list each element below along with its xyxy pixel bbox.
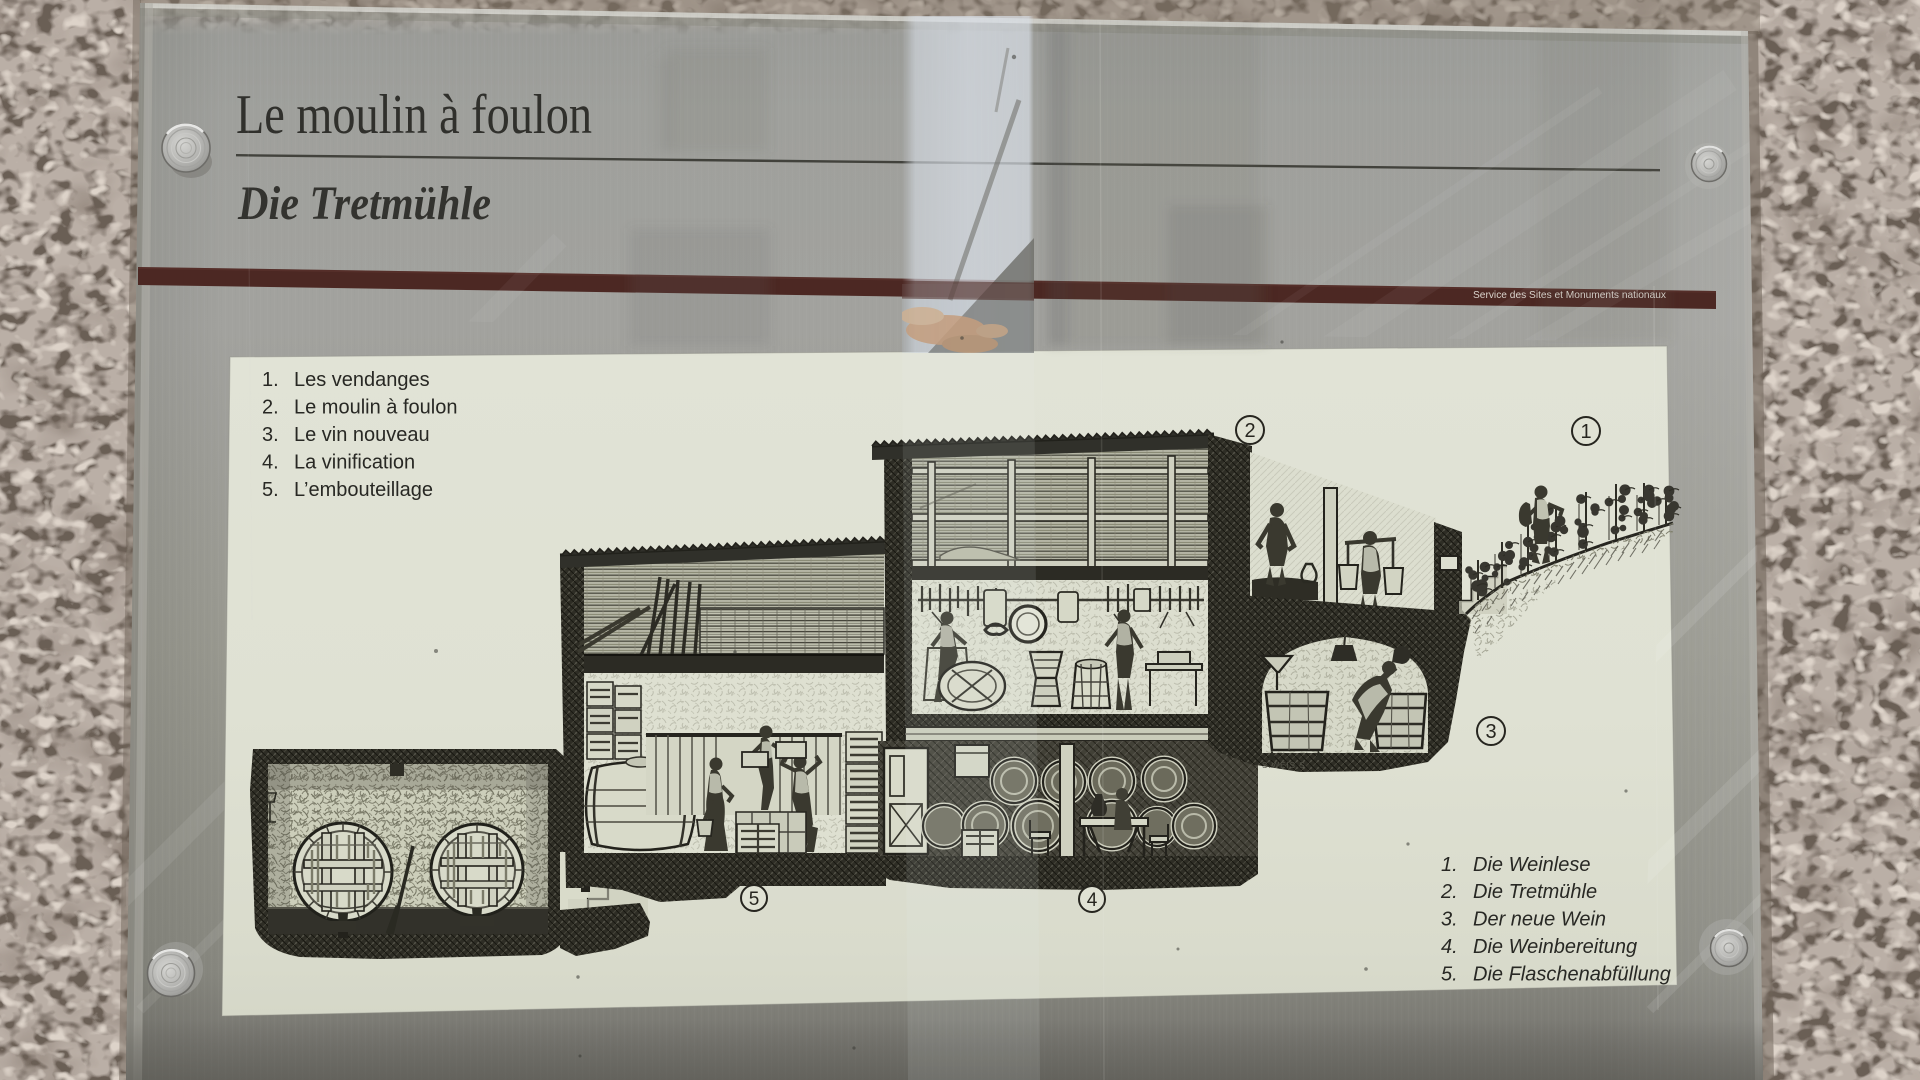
svg-text:5.: 5. bbox=[262, 479, 279, 501]
svg-text:1.: 1. bbox=[1441, 854, 1458, 876]
svg-text:4.: 4. bbox=[1441, 936, 1458, 958]
svg-text:Le moulin à foulon: Le moulin à foulon bbox=[236, 84, 592, 146]
svg-text:4.: 4. bbox=[262, 452, 279, 474]
svg-text:Die Weinbereitung: Die Weinbereitung bbox=[1473, 936, 1637, 958]
svg-text:Die Tretmühle: Die Tretmühle bbox=[237, 177, 491, 230]
svg-text:Der neue Wein: Der neue Wein bbox=[1473, 909, 1606, 931]
svg-text:4: 4 bbox=[1087, 890, 1098, 911]
svg-text:S.WEIS.S: S.WEIS.S bbox=[1262, 761, 1306, 770]
svg-text:2: 2 bbox=[1244, 420, 1255, 442]
svg-text:Die Weinlese: Die Weinlese bbox=[1473, 854, 1590, 876]
svg-text:La vinification: La vinification bbox=[294, 452, 415, 474]
svg-text:2.: 2. bbox=[1440, 881, 1458, 903]
svg-text:Le vin nouveau: Le vin nouveau bbox=[294, 424, 430, 446]
svg-text:1.: 1. bbox=[262, 369, 279, 391]
svg-text:3.: 3. bbox=[1441, 909, 1458, 931]
svg-text:5: 5 bbox=[749, 889, 760, 910]
svg-text:1: 1 bbox=[1580, 421, 1591, 443]
svg-text:3.: 3. bbox=[262, 424, 279, 446]
svg-text:Les vendanges: Les vendanges bbox=[294, 369, 430, 391]
svg-text:5.: 5. bbox=[1441, 964, 1458, 986]
svg-text:Le moulin à foulon: Le moulin à foulon bbox=[294, 397, 457, 419]
svg-text:3: 3 bbox=[1485, 721, 1496, 743]
svg-text:L’embouteillage: L’embouteillage bbox=[294, 479, 433, 501]
svg-text:2.: 2. bbox=[262, 397, 279, 419]
svg-text:Die Tretmühle: Die Tretmühle bbox=[1473, 881, 1597, 903]
svg-text:Die Flaschenabfüllung: Die Flaschenabfüllung bbox=[1473, 964, 1671, 986]
